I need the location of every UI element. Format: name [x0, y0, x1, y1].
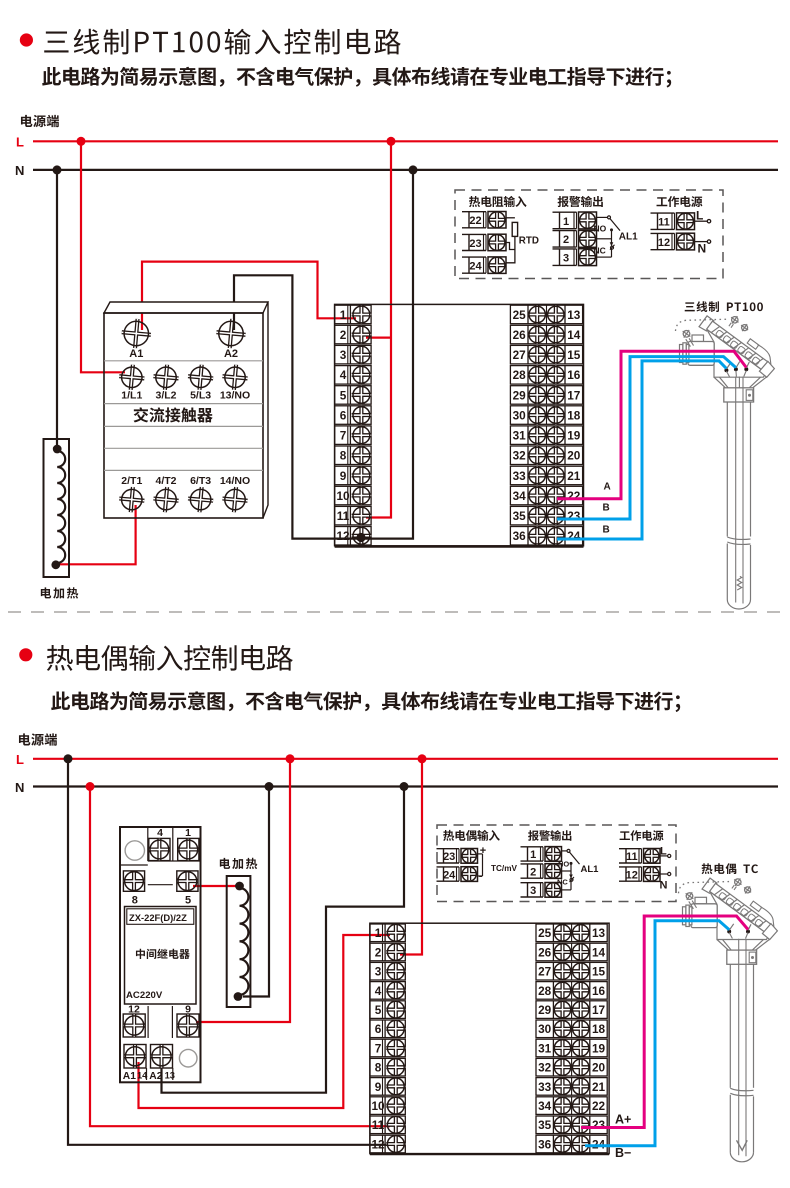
svg-text:AC220V: AC220V: [126, 990, 163, 1001]
svg-text:26: 26: [538, 945, 552, 959]
svg-text:3/L2: 3/L2: [155, 390, 176, 402]
svg-text:2: 2: [340, 328, 347, 342]
svg-text:26: 26: [513, 328, 527, 342]
svg-text:17: 17: [592, 1003, 606, 1017]
svg-text:32: 32: [513, 449, 527, 463]
svg-text:34: 34: [513, 489, 527, 503]
svg-text:12: 12: [658, 237, 670, 249]
svg-text:29: 29: [538, 1003, 552, 1017]
svg-text:A1: A1: [123, 1071, 136, 1082]
svg-text:A: A: [604, 482, 611, 493]
svg-text:1: 1: [563, 216, 569, 228]
svg-text:B−: B−: [615, 1146, 631, 1160]
svg-text:5/L3: 5/L3: [190, 390, 211, 402]
svg-text:8: 8: [132, 895, 138, 907]
svg-text:B: B: [603, 503, 610, 514]
svg-text:1: 1: [375, 926, 382, 940]
svg-text:23: 23: [592, 1118, 606, 1132]
svg-text:35: 35: [538, 1118, 552, 1132]
svg-text:L: L: [660, 846, 667, 858]
svg-text:ZX-22F(D)/2Z: ZX-22F(D)/2Z: [129, 912, 187, 923]
svg-text:25: 25: [538, 926, 552, 940]
svg-text:9: 9: [375, 1080, 382, 1094]
svg-text:16: 16: [592, 984, 606, 998]
svg-text:13/NO: 13/NO: [220, 390, 250, 402]
svg-text:20: 20: [592, 1061, 606, 1075]
svg-text:2: 2: [375, 945, 382, 959]
svg-text:3: 3: [340, 348, 347, 362]
svg-text:19: 19: [592, 1041, 606, 1055]
svg-text:13: 13: [592, 926, 606, 940]
svg-text:31: 31: [538, 1041, 552, 1055]
svg-text:AL1: AL1: [581, 864, 600, 875]
svg-text:B: B: [603, 525, 610, 536]
svg-text:5: 5: [185, 895, 191, 907]
svg-text:12: 12: [336, 529, 350, 543]
svg-text:2: 2: [530, 866, 536, 878]
svg-text:10: 10: [336, 489, 350, 503]
svg-text:1: 1: [530, 849, 536, 861]
svg-text:30: 30: [538, 1022, 552, 1036]
svg-text:RTD: RTD: [519, 236, 539, 247]
svg-text:NC: NC: [594, 246, 606, 256]
svg-text:25: 25: [513, 308, 527, 322]
svg-text:10: 10: [371, 1099, 385, 1113]
svg-text:14: 14: [137, 1070, 148, 1080]
svg-text:17: 17: [567, 388, 581, 402]
svg-text:11: 11: [337, 509, 350, 523]
svg-text:7: 7: [375, 1041, 382, 1055]
svg-text:8: 8: [340, 449, 347, 463]
svg-text:1/L1: 1/L1: [121, 390, 142, 402]
svg-text:4: 4: [340, 368, 347, 382]
svg-text:20: 20: [567, 449, 581, 463]
svg-text:NC: NC: [557, 878, 568, 887]
svg-text:21: 21: [567, 469, 581, 483]
svg-text:35: 35: [513, 509, 527, 523]
svg-text:36: 36: [538, 1137, 552, 1151]
svg-text:28: 28: [513, 368, 527, 382]
svg-text:6/T3: 6/T3: [190, 475, 211, 487]
svg-text:3: 3: [563, 252, 569, 264]
svg-text:2/T1: 2/T1: [121, 475, 142, 487]
svg-text:31: 31: [513, 429, 527, 443]
svg-text:19: 19: [567, 429, 581, 443]
svg-text:14: 14: [592, 945, 606, 959]
svg-text:22: 22: [592, 1099, 606, 1113]
svg-text:34: 34: [538, 1099, 552, 1113]
svg-text:12: 12: [371, 1137, 385, 1151]
svg-text:A+: A+: [615, 1113, 631, 1127]
svg-text:4/T2: 4/T2: [155, 475, 176, 487]
svg-text:NO: NO: [594, 224, 607, 234]
svg-text:23: 23: [443, 851, 455, 863]
svg-text:27: 27: [513, 348, 527, 362]
svg-text:27: 27: [538, 965, 552, 979]
svg-text:3: 3: [530, 885, 536, 897]
svg-text:6: 6: [340, 409, 347, 423]
svg-text:N: N: [15, 163, 24, 178]
svg-text:15: 15: [592, 965, 606, 979]
svg-text:A1: A1: [129, 348, 143, 360]
svg-text:2: 2: [563, 234, 569, 246]
svg-text:1: 1: [185, 827, 191, 839]
svg-text:4: 4: [157, 827, 163, 839]
svg-text:6: 6: [375, 1022, 382, 1036]
svg-text:1: 1: [340, 308, 347, 322]
svg-text:16: 16: [567, 368, 581, 382]
svg-text:TC/mV: TC/mV: [491, 864, 517, 873]
svg-text:36: 36: [513, 529, 527, 543]
svg-text:9: 9: [340, 469, 347, 483]
svg-text:AL1: AL1: [619, 232, 638, 243]
svg-text:30: 30: [513, 409, 527, 423]
svg-text:N: N: [15, 780, 24, 795]
svg-text:N: N: [660, 880, 668, 892]
svg-text:L: L: [16, 752, 24, 767]
svg-text:14: 14: [567, 328, 581, 342]
svg-text:3: 3: [375, 965, 382, 979]
svg-text:A2: A2: [149, 1071, 162, 1082]
svg-text:NO: NO: [558, 860, 569, 869]
svg-text:L: L: [16, 135, 24, 150]
svg-text:A2: A2: [224, 348, 238, 360]
svg-text:8: 8: [375, 1061, 382, 1075]
svg-text:24: 24: [443, 869, 456, 881]
svg-text:4: 4: [375, 984, 382, 998]
svg-text:22: 22: [567, 489, 581, 503]
svg-text:15: 15: [567, 348, 581, 362]
svg-text:18: 18: [592, 1022, 606, 1036]
svg-text:5: 5: [375, 1003, 382, 1017]
svg-text:13: 13: [165, 1070, 175, 1080]
svg-text:11: 11: [626, 851, 638, 863]
svg-text:33: 33: [538, 1080, 552, 1094]
svg-text:14/NO: 14/NO: [220, 475, 250, 487]
svg-text:22: 22: [469, 215, 481, 227]
svg-text:N: N: [698, 242, 707, 256]
svg-text:11: 11: [658, 217, 670, 229]
svg-text:33: 33: [513, 469, 527, 483]
svg-text:24: 24: [567, 529, 581, 543]
svg-text:23: 23: [567, 509, 581, 523]
svg-text:12: 12: [626, 869, 638, 881]
svg-text:29: 29: [513, 388, 527, 402]
svg-text:28: 28: [538, 984, 552, 998]
svg-text:L: L: [696, 209, 703, 223]
svg-text:7: 7: [340, 429, 347, 443]
svg-text:32: 32: [538, 1061, 552, 1075]
svg-text:+: +: [480, 845, 486, 857]
svg-text:13: 13: [567, 308, 581, 322]
svg-text:5: 5: [340, 388, 347, 402]
svg-text:21: 21: [592, 1080, 606, 1094]
svg-text:24: 24: [469, 261, 482, 273]
svg-text:18: 18: [567, 409, 581, 423]
svg-text:-: -: [479, 870, 483, 882]
svg-text:11: 11: [372, 1118, 385, 1132]
svg-text:23: 23: [469, 238, 481, 250]
